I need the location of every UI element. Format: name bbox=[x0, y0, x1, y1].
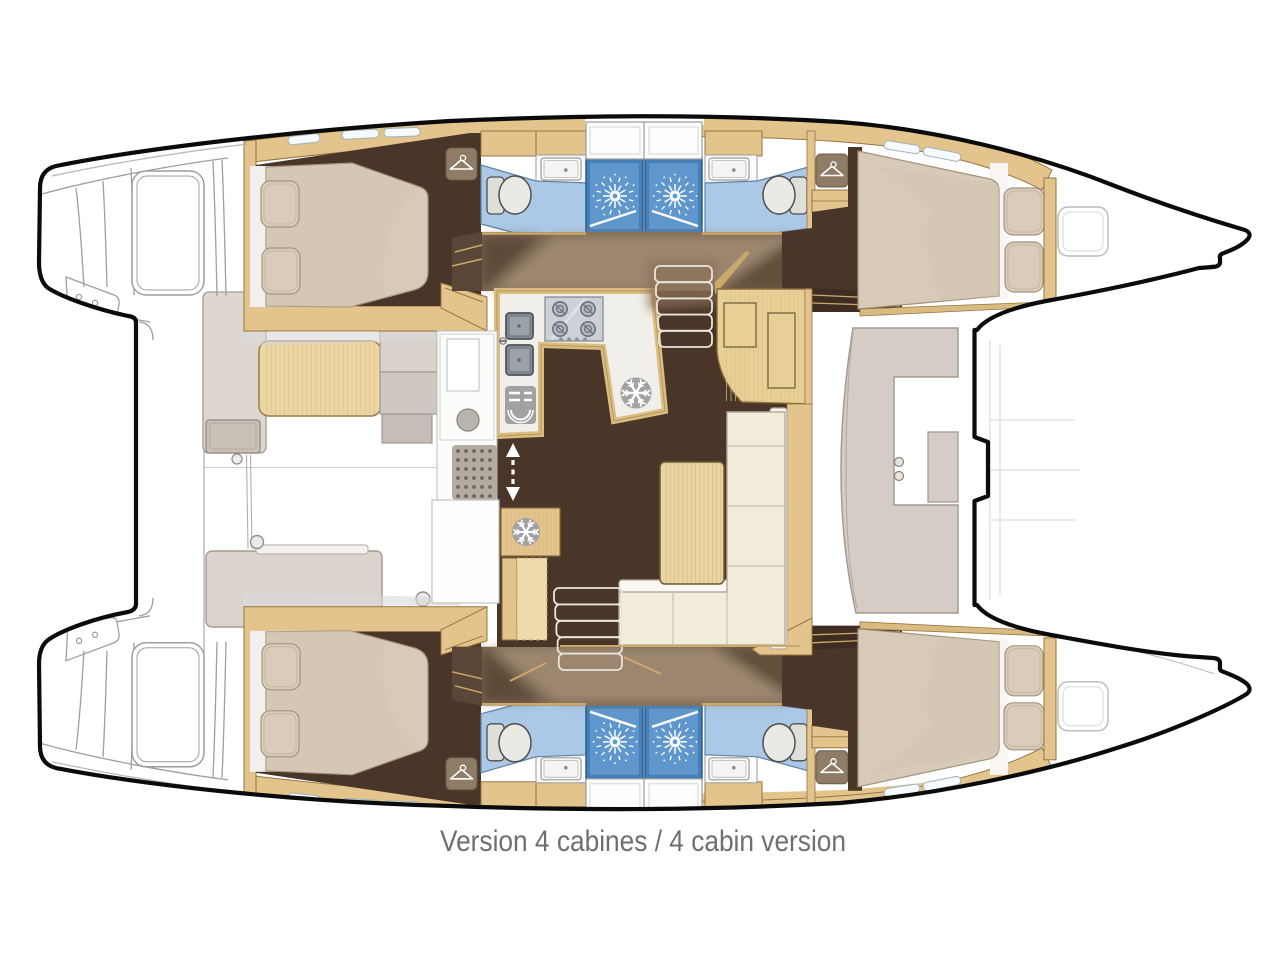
svg-text:Version 4 cabines / 4 cabin ve: Version 4 cabines / 4 cabin version bbox=[440, 825, 846, 858]
